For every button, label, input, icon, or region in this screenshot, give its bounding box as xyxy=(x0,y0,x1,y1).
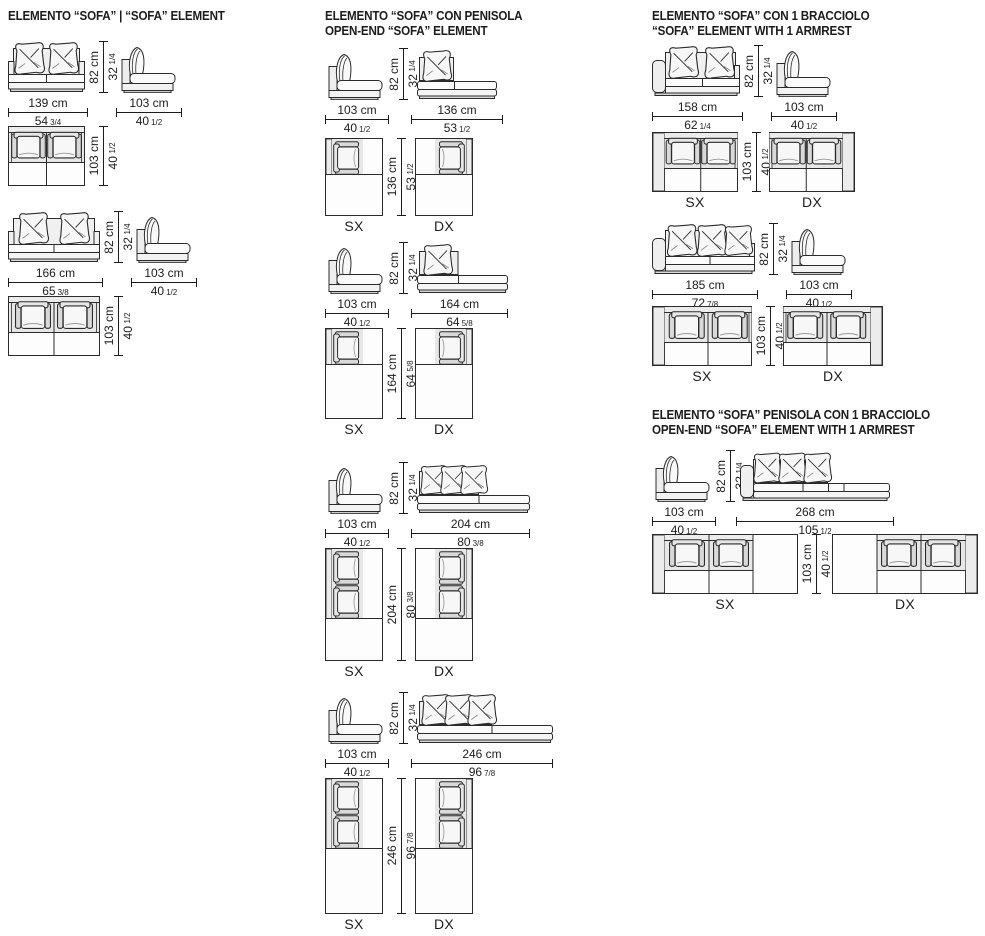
dimension-cm: 103 cm xyxy=(88,136,100,175)
dimension-line xyxy=(736,521,894,522)
dimension-line xyxy=(401,138,402,216)
dimension-cm: 82 cm xyxy=(743,55,755,88)
dimension-line xyxy=(730,450,731,502)
dimension-inch: 531/2 xyxy=(444,122,470,135)
front-view-drawing xyxy=(417,48,497,100)
dimension-line xyxy=(771,116,837,117)
height-dimension: 82 cm 321/4 xyxy=(388,242,419,294)
side-view-drawing xyxy=(325,467,385,514)
top-view-drawing xyxy=(8,296,100,356)
variant-group-164: 82 cm 321/4 103 cm 401/2 164 cm 645/8 16… xyxy=(325,240,565,440)
dimension-line xyxy=(403,462,404,514)
depth-dimension: 246 cm 967/8 xyxy=(386,778,417,914)
variant-group-166: 82 cm 321/4 166 cm 653/8 103 cm 401/2 10… xyxy=(8,210,318,370)
dimension-line xyxy=(411,533,530,534)
side-view-drawing xyxy=(788,228,848,275)
side-view-drawing xyxy=(133,216,193,263)
dimension-line xyxy=(118,296,119,356)
dimension-line xyxy=(118,211,119,263)
top-view-dx-drawing xyxy=(415,138,473,216)
dimension-cm: 103 cm xyxy=(337,104,376,117)
top-view-dx-drawing xyxy=(769,132,855,192)
dimension-cm: 158 cm xyxy=(678,101,717,114)
side-width-dimension: 103 cm 401/2 xyxy=(771,101,837,132)
dimension-cm: 82 cm xyxy=(388,472,400,505)
dimension-inch: 401/2 xyxy=(344,122,370,135)
side-width-dimension: 103 cm 401/2 xyxy=(325,104,389,135)
dimension-line xyxy=(401,548,402,661)
dimension-line xyxy=(411,763,553,764)
dimension-cm: 103 cm xyxy=(337,748,376,761)
height-dimension: 82 cm 321/4 xyxy=(743,45,774,97)
top-view-sx-drawing xyxy=(652,534,798,594)
side-width-dimension: 103 cm 401/2 xyxy=(325,298,389,329)
dimension-line xyxy=(816,534,817,594)
dx-label: DX xyxy=(415,422,473,437)
dimension-cm: 82 cm xyxy=(388,252,400,285)
section-title-line2: “SOFA” ELEMENT WITH 1 ARMREST xyxy=(652,24,870,39)
dimension-line xyxy=(8,282,103,283)
front-width-dimension: 246 cm 967/8 xyxy=(411,748,553,779)
variant-group-246: 82 cm 321/4 103 cm 401/2 246 cm 967/8 24… xyxy=(325,690,565,935)
sx-label: SX xyxy=(652,369,752,384)
dimension-inch: 621/4 xyxy=(684,119,710,132)
dimension-line xyxy=(411,119,503,120)
top-view-sx-drawing xyxy=(325,328,383,419)
dimension-inch: 401/2 xyxy=(151,285,177,298)
dimension-cm: 166 cm xyxy=(36,267,75,280)
dimension-cm: 268 cm xyxy=(795,506,834,519)
dx-label: DX xyxy=(415,219,473,234)
side-view-drawing xyxy=(773,50,833,97)
front-width-dimension: 158 cm 621/4 xyxy=(652,101,743,132)
dimension-line xyxy=(325,313,389,314)
sx-label: SX xyxy=(325,219,383,234)
front-view-drawing xyxy=(652,45,740,97)
section-title-line2: OPEN-END “SOFA” ELEMENT WITH 1 ARMREST xyxy=(652,423,930,438)
section-title-line2: OPEN-END “SOFA” ELEMENT xyxy=(325,24,522,39)
top-view-sx-drawing xyxy=(325,778,383,914)
dx-label: DX xyxy=(415,664,473,679)
dimension-cm: 103 cm xyxy=(129,97,168,110)
dimension-line xyxy=(786,294,852,295)
variant-group-268: 82 cm 321/4 103 cm 401/2 268 cm 1051/2 xyxy=(652,446,985,621)
section-title-open-end-armrest: ELEMENTO “SOFA” PENISOLA CON 1 BRACCIOLO… xyxy=(652,408,930,437)
height-dimension: 82 cm 321/4 xyxy=(88,41,119,93)
side-width-dimension: 103 cm 401/2 xyxy=(652,506,716,537)
dimension-line xyxy=(8,112,88,113)
front-view-drawing xyxy=(740,450,890,502)
depth-dimension: 136 cm 531/2 xyxy=(386,138,417,216)
dimension-cm: 103 cm xyxy=(664,506,703,519)
dimension-cm: 82 cm xyxy=(388,702,400,735)
dimension-cm: 103 cm xyxy=(755,316,767,355)
dimension-line xyxy=(652,116,743,117)
front-width-dimension: 139 cm 543/4 xyxy=(8,97,88,128)
depth-dimension: 164 cm 645/8 xyxy=(386,328,417,419)
dimension-cm: 103 cm xyxy=(801,544,813,583)
dimension-cm: 164 cm xyxy=(386,354,398,393)
front-width-dimension: 204 cm 803/8 xyxy=(411,518,530,549)
height-dimension: 82 cm 321/4 xyxy=(758,223,789,275)
side-view-drawing xyxy=(118,46,178,93)
dimension-line xyxy=(325,533,389,534)
dx-label: DX xyxy=(415,917,473,932)
section-title-line1: ELEMENTO “SOFA” PENISOLA CON 1 BRACCIOLO xyxy=(652,408,930,423)
front-width-dimension: 136 cm 531/2 xyxy=(411,104,503,135)
front-view-drawing xyxy=(417,692,553,744)
side-width-dimension: 103 cm 401/2 xyxy=(325,748,389,779)
dimension-line xyxy=(773,223,774,275)
dimension-cm: 82 cm xyxy=(758,233,770,266)
sx-label: SX xyxy=(325,664,383,679)
variant-group-158: 82 cm 321/4 158 cm 621/4 103 cm 401/2 10… xyxy=(652,44,985,212)
variant-group-185: 82 cm 321/4 185 cm 727/8 103 cm 401/2 10… xyxy=(652,222,985,390)
dimension-cm: 82 cm xyxy=(715,460,727,493)
dimension-line xyxy=(411,313,508,314)
depth-dimension: 103 cm 401/2 xyxy=(741,132,772,192)
height-dimension: 82 cm 321/4 xyxy=(388,462,419,514)
sx-label: SX xyxy=(325,917,383,932)
dimension-cm: 136 cm xyxy=(437,104,476,117)
top-view-dx-drawing xyxy=(415,328,473,419)
sx-label: SX xyxy=(652,597,798,612)
top-view-dx-drawing xyxy=(783,306,883,366)
dimension-line xyxy=(401,328,402,419)
dimension-cm: 103 cm xyxy=(144,267,183,280)
dimension-line xyxy=(652,294,758,295)
side-view-drawing xyxy=(652,455,712,502)
depth-dimension: 204 cm 803/8 xyxy=(386,548,417,661)
dimension-cm: 103 cm xyxy=(337,298,376,311)
dx-label: DX xyxy=(832,597,978,612)
section-title-line1: ELEMENTO “SOFA” CON PENISOLA xyxy=(325,9,522,24)
top-view-sx-drawing xyxy=(652,132,738,192)
front-width-dimension: 164 cm 645/8 xyxy=(411,298,508,329)
variant-group-139: 82 cm 321/4 139 cm 543/4 103 cm 401/2 10… xyxy=(8,40,318,200)
sx-label: SX xyxy=(325,422,383,437)
dimension-inch: 401/2 xyxy=(122,312,134,339)
dimension-inch: 401/2 xyxy=(791,119,817,132)
top-view-sx-drawing xyxy=(652,306,752,366)
side-view-drawing xyxy=(325,697,385,744)
section-title-line1: ELEMENTO “SOFA” | “SOFA” ELEMENT xyxy=(8,9,225,24)
dx-label: DX xyxy=(783,369,883,384)
dimension-cm: 82 cm xyxy=(388,58,400,91)
dimension-cm: 246 cm xyxy=(462,748,501,761)
depth-dimension: 103 cm 401/2 xyxy=(103,296,134,356)
side-width-dimension: 103 cm 401/2 xyxy=(325,518,389,549)
top-view-dx-drawing xyxy=(415,778,473,914)
dimension-line xyxy=(116,112,182,113)
dimension-cm: 103 cm xyxy=(741,142,753,181)
dimension-cm: 139 cm xyxy=(28,97,67,110)
dimension-cm: 164 cm xyxy=(440,298,479,311)
dimension-line xyxy=(325,763,389,764)
dimension-cm: 204 cm xyxy=(451,518,490,531)
dx-label: DX xyxy=(769,195,855,210)
side-view-drawing xyxy=(325,247,385,294)
dimension-line xyxy=(403,48,404,100)
front-view-drawing xyxy=(417,462,530,514)
dimension-line xyxy=(758,45,759,97)
top-view-sx-drawing xyxy=(325,548,383,661)
top-view-drawing xyxy=(8,126,85,186)
dimension-cm: 103 cm xyxy=(784,101,823,114)
top-view-dx-drawing xyxy=(415,548,473,661)
dimension-line xyxy=(403,692,404,744)
section-title-armrest: ELEMENTO “SOFA” CON 1 BRACCIOLO “SOFA” E… xyxy=(652,9,870,38)
section-title-open-end: ELEMENTO “SOFA” CON PENISOLA OPEN-END “S… xyxy=(325,9,522,38)
front-view-drawing xyxy=(652,223,755,275)
dimension-cm: 82 cm xyxy=(103,221,115,254)
dimension-cm: 204 cm xyxy=(386,585,398,624)
dimension-line xyxy=(325,119,389,120)
height-dimension: 82 cm 321/4 xyxy=(388,692,419,744)
dimension-cm: 136 cm xyxy=(386,157,398,196)
dimension-line xyxy=(131,282,197,283)
dimension-line xyxy=(770,306,771,366)
dimension-cm: 103 cm xyxy=(337,518,376,531)
dimension-cm: 185 cm xyxy=(685,279,724,292)
dimension-cm: 103 cm xyxy=(103,306,115,345)
spec-sheet: ELEMENTO “SOFA” | “SOFA” ELEMENT 82 cm 3… xyxy=(0,0,985,936)
section-title-line1: ELEMENTO “SOFA” CON 1 BRACCIOLO xyxy=(652,9,870,24)
depth-dimension: 103 cm 401/2 xyxy=(755,306,786,366)
dimension-cm: 246 cm xyxy=(386,826,398,865)
side-width-dimension: 103 cm 401/2 xyxy=(116,97,182,128)
variant-group-136: 82 cm 321/4 103 cm 401/2 136 cm 531/2 13… xyxy=(325,46,565,236)
variant-group-204: 82 cm 321/4 103 cm 401/2 204 cm 803/8 20… xyxy=(325,460,565,682)
dimension-inch: 401/2 xyxy=(820,550,832,577)
front-width-dimension: 166 cm 653/8 xyxy=(8,267,103,298)
top-view-dx-drawing xyxy=(832,534,978,594)
dimension-line xyxy=(103,41,104,93)
dimension-inch: 401/2 xyxy=(107,142,119,169)
top-view-sx-drawing xyxy=(325,138,383,216)
side-width-dimension: 103 cm 401/2 xyxy=(131,267,197,298)
dimension-cm: 103 cm xyxy=(799,279,838,292)
dimension-inch: 401/2 xyxy=(136,115,162,128)
dimension-line xyxy=(103,126,104,186)
height-dimension: 82 cm 321/4 xyxy=(103,211,134,263)
dimension-line xyxy=(401,778,402,914)
dimension-line xyxy=(652,521,716,522)
dimension-cm: 82 cm xyxy=(88,51,100,84)
depth-dimension: 103 cm 401/2 xyxy=(88,126,119,186)
dimension-line xyxy=(756,132,757,192)
front-view-drawing xyxy=(8,41,85,93)
front-view-drawing xyxy=(417,242,508,294)
section-title-sofa-element: ELEMENTO “SOFA” | “SOFA” ELEMENT xyxy=(8,9,225,24)
depth-dimension: 103 cm 401/2 xyxy=(801,534,832,594)
dimension-line xyxy=(403,242,404,294)
front-view-drawing xyxy=(8,211,100,263)
front-width-dimension: 268 cm 1051/2 xyxy=(736,506,894,537)
sx-label: SX xyxy=(652,195,738,210)
side-view-drawing xyxy=(325,53,385,100)
height-dimension: 82 cm 321/4 xyxy=(388,48,419,100)
